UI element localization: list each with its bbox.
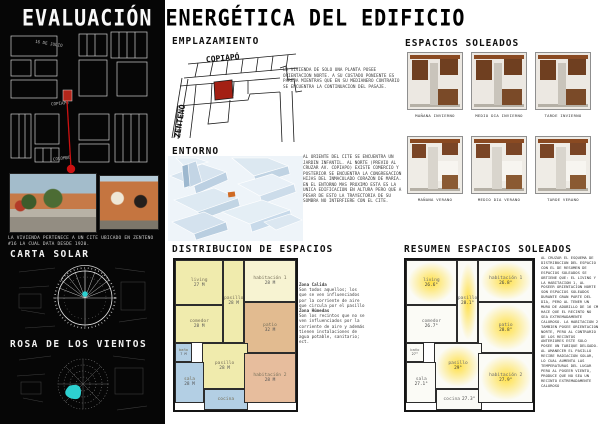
- room-pasillo-norte: pasillo28 M: [223, 260, 244, 343]
- poster: 16 DE JULIO COPIAPO COLOMBO LA VIVIENDA …: [0, 0, 601, 424]
- render-caption: MEDIO DIA INVIERNO: [475, 113, 523, 118]
- emplazamiento-note: LA VIVIENDA DE SOLO UNA PLANTA POSEE ORI…: [283, 68, 401, 90]
- room-pasillo-sur: pasillo28 M: [202, 343, 248, 390]
- render-caption: TARDE INVIERNO: [545, 113, 582, 118]
- wind-rose-diagram: [15, 352, 150, 418]
- sun-path-diagram: [15, 262, 150, 334]
- room-pasillo-norte-temp: pasillo28.1°: [457, 260, 479, 343]
- context-3d-render: [168, 156, 303, 241]
- render-caption: MAÑANA INVIERNO: [415, 113, 455, 118]
- resumen-title: RESUMEN ESPACIOS SOLEADOS: [404, 244, 572, 255]
- room-patio-temp: patio28.8°: [478, 302, 533, 353]
- site-photo-facade: [99, 175, 159, 230]
- room-habitacion-1-temp: habitación 126.8°: [478, 260, 533, 302]
- room-comedor-temp: comedor26.7°: [406, 305, 457, 343]
- sunlight-thumb-grid: MAÑANA INVIERNO MEDIO DIA INVIERNO TARDE…: [403, 52, 595, 220]
- room-pasillo-sur-temp: pasillo29°: [434, 343, 482, 390]
- site-pointer-dot: [67, 165, 75, 173]
- zona-humeda-body: Son los recintos que no se ven influenci…: [299, 313, 365, 344]
- distribucion-title: DISTRIBUCION DE ESPACIOS: [172, 244, 333, 255]
- floor-plan-resumen: living26.6° habitación 126.8° comedor26.…: [404, 258, 535, 412]
- room-sala-temp: sala27.1°: [406, 362, 436, 403]
- entorno-note: AL ORIENTE DEL CITE SE ENCUENTRA UN JARD…: [303, 155, 403, 205]
- cadastral-map: 16 DE JULIO COPIAPO COLOMBO: [5, 30, 160, 175]
- sun-position-dot: [82, 291, 88, 297]
- street-label-zenteno: ZENTENO: [173, 104, 187, 139]
- room-habitacion-2: habitación 228 M: [244, 353, 296, 403]
- carta-solar-title: CARTA SOLAR: [10, 249, 89, 260]
- map-street-bottom-label: COLOMBO: [53, 155, 72, 162]
- room-patio: patio32 M: [244, 302, 296, 353]
- resumen-analysis: AL CRUZAR EL ESQUEMA DE DISTRIBUCION DEL…: [541, 256, 599, 388]
- street-label-copiapo: COPIAPÓ: [205, 50, 240, 64]
- site-plan: COPIAPÓ ZENTENO: [168, 46, 303, 142]
- room-bano-temp: baño27°: [406, 343, 424, 363]
- map-street-top-label: 16 DE JULIO: [35, 39, 64, 48]
- room-comedor: comedor28 M: [175, 305, 223, 343]
- sunlight-render-noon-winter: [471, 52, 527, 110]
- render-caption: TARDE VERANO: [547, 197, 579, 202]
- room-living-temp: living26.6°: [406, 260, 457, 305]
- photo-caption: LA VIVIENDA PERTENECE A UN CITE UBICADO …: [8, 236, 160, 247]
- sunlight-render-afternoon-winter: [535, 52, 591, 110]
- sunlight-render-morning-winter: [407, 52, 463, 110]
- room-bano: baño7 M: [175, 343, 192, 363]
- sunlight-render-afternoon-summer: [535, 136, 591, 194]
- site-marker: [63, 90, 72, 101]
- context-site-marker: [228, 191, 236, 197]
- sunlight-render-morning-summer: [407, 136, 463, 194]
- room-cocina-temp: cocina27.3°: [436, 389, 482, 410]
- wind-rose-blob: [65, 385, 81, 399]
- render-caption: MEDIO DIA VERANO: [478, 197, 520, 202]
- sidebar: 16 DE JULIO COPIAPO COLOMBO LA VIVIENDA …: [0, 0, 165, 424]
- floor-plan-distribucion: living27 M habitación 128 M comedor28 M …: [173, 258, 298, 412]
- room-sala: sala28 M: [175, 362, 204, 403]
- room-habitacion-1: habitación 128 M: [244, 260, 296, 302]
- site-parcel: [214, 80, 233, 100]
- sunlight-render-noon-summer: [471, 136, 527, 194]
- room-living: living27 M: [175, 260, 223, 305]
- room-cocina: cocina: [204, 389, 248, 410]
- espacios-soleados-title: ESPACIOS SOLEADOS: [405, 38, 519, 49]
- page-title: EVALUACIÓN ENERGÉTICA DEL EDIFICIO: [22, 2, 465, 33]
- site-photo-courtyard: [9, 173, 97, 233]
- room-habitacion-2-temp: habitación 227.9°: [478, 353, 533, 403]
- zona-calida-body: Son todos aquellos; los que se ven influ…: [299, 287, 365, 308]
- render-caption: MAÑANA VERANO: [418, 197, 452, 202]
- rosa-vientos-title: ROSA DE LOS VIENTOS: [10, 339, 147, 350]
- zona-legend: Zona Calida Son todos aquellos; los que …: [299, 282, 365, 344]
